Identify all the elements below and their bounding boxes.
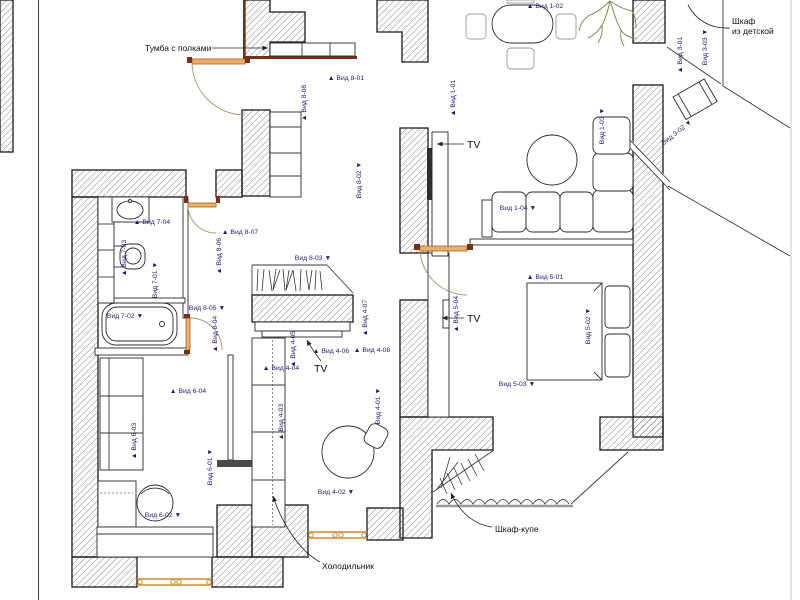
wall-bottom-b xyxy=(212,557,283,587)
view-marker-7-03: ▲ Вид 7-03 xyxy=(121,240,128,277)
wall-closet-south xyxy=(252,295,353,322)
tv-console xyxy=(432,132,448,256)
tv-bedroom-icon xyxy=(443,300,449,328)
view-marker-5-03: Вид 5-03 ▼ xyxy=(499,381,535,388)
dining-table xyxy=(492,5,553,43)
label-fridge: Холодильник xyxy=(322,561,374,571)
niche-underline xyxy=(243,56,357,59)
view-marker-8-05: Вид 8-05 ▼ xyxy=(189,305,225,312)
view-marker-4-07: ▲ Вид 4-07 xyxy=(362,300,369,337)
wall-bedroom-south xyxy=(600,417,663,450)
partition-children-kitchen xyxy=(228,355,233,460)
view-marker-1-04: Вид 1-04 ▼ xyxy=(500,205,536,212)
view-marker-5-01: ▲ Вид 5-01 xyxy=(527,274,564,281)
view-marker-4-08: ▲ Вид 4-08 xyxy=(354,347,391,354)
view-marker-8-02: Вид 8-02 ▼ xyxy=(356,162,363,198)
desk-return xyxy=(98,481,136,527)
wall-top-right-a xyxy=(633,0,665,43)
view-marker-7-04: ▲ Вид 7-04 xyxy=(134,219,171,226)
label-wardrobe-line1: Шкаф xyxy=(732,16,755,26)
label-slide-wardrobe: Шкаф-купе xyxy=(495,524,539,534)
label-tumba: Тумба с полками xyxy=(145,43,212,53)
view-marker-7-02: Вид 7-02 ▼ xyxy=(107,313,143,320)
view-marker-5-02: Вид 5-02 ▼ xyxy=(585,308,592,344)
view-marker-8-01: ▲ Вид 8-01 xyxy=(328,75,365,82)
floor-plan-drawing: Тумба с полками Шкаф из детской TV TV TV… xyxy=(0,0,800,600)
view-marker-5-04: ▲ Вид 5-04 xyxy=(453,296,460,333)
wall-top-left-sliver xyxy=(0,0,13,152)
coffee-table xyxy=(527,135,577,185)
partition-kitchen-bedroom xyxy=(428,253,449,417)
partition-living-bedroom xyxy=(470,239,633,245)
wall-bath-north-a xyxy=(72,170,186,197)
view-marker-4-05: ▲ Вид 4-05 xyxy=(290,331,297,368)
view-marker-8-08: ▲ Вид 8-08 xyxy=(301,85,308,122)
hall-cabinet xyxy=(270,112,301,197)
view-marker-6-04: ▲ Вид 6-04 xyxy=(170,388,207,395)
view-marker-4-02: Вид 4-02 ▼ xyxy=(318,489,354,496)
wall-living-tv xyxy=(400,128,428,253)
view-marker-4-01: Вид 4-01 ▼ xyxy=(375,388,382,424)
pillow xyxy=(605,334,630,377)
view-marker-1-02: ▲ Вид 1-02 xyxy=(527,3,564,10)
shelf-cabinet xyxy=(270,43,355,56)
wall-bottom-e xyxy=(367,508,403,540)
label-tv-living: TV xyxy=(467,139,480,151)
view-marker-3-01: ▲ Вид 3-01 xyxy=(677,37,684,74)
view-marker-6-02: Вид 6-02 ▼ xyxy=(145,512,181,519)
label-tv-kitchen: TV xyxy=(314,363,327,375)
wall-bath-north-b xyxy=(216,170,242,197)
view-marker-3-03: Вид 3-03 ▼ xyxy=(702,29,709,65)
wall-bottom-a xyxy=(72,557,137,587)
view-marker-8-07: ▲ Вид 8-07 xyxy=(222,229,259,236)
wall-west-outer xyxy=(72,197,98,557)
lintel-band xyxy=(217,460,252,467)
tv-living-icon xyxy=(427,148,432,200)
view-marker-6-03: ▲ Вид 6-03 xyxy=(131,423,138,460)
view-marker-1-03: Вид 1-03 ▼ xyxy=(599,108,606,144)
wall-kitchen-east xyxy=(400,300,428,417)
wall-east-column xyxy=(633,85,663,437)
view-marker-7-01: Вид 7-01 ▼ xyxy=(152,262,159,298)
view-marker-6-01: Вид 6-01 ▼ xyxy=(207,449,214,485)
view-marker-8-03: Вид 8-03 ▼ xyxy=(295,255,331,262)
label-tv-bedroom: TV xyxy=(467,313,480,325)
entry-jamb-line xyxy=(243,0,246,57)
pillow xyxy=(605,286,630,328)
wall-bottom-c xyxy=(217,505,252,557)
floor-plan-canvas: Тумба с полками Шкаф из детской TV TV TV… xyxy=(0,0,800,600)
view-marker-8-04: ▲ Вид 8-04 xyxy=(212,316,219,353)
partition-children-north xyxy=(95,348,188,355)
label-wardrobe-line2: из детской xyxy=(732,26,774,36)
kitchen-tv-unit xyxy=(255,322,350,331)
view-marker-4-06: ▲ Вид 4-06 xyxy=(313,348,350,355)
children-desk xyxy=(97,527,213,557)
view-marker-4-03: ▲ Вид 4-03 xyxy=(278,404,285,441)
view-marker-1-01: ▲ Вид 1-01 xyxy=(450,80,457,117)
view-marker-8-06: ▲ Вид 8-06 xyxy=(216,238,223,275)
wall-hall-block xyxy=(242,110,270,196)
